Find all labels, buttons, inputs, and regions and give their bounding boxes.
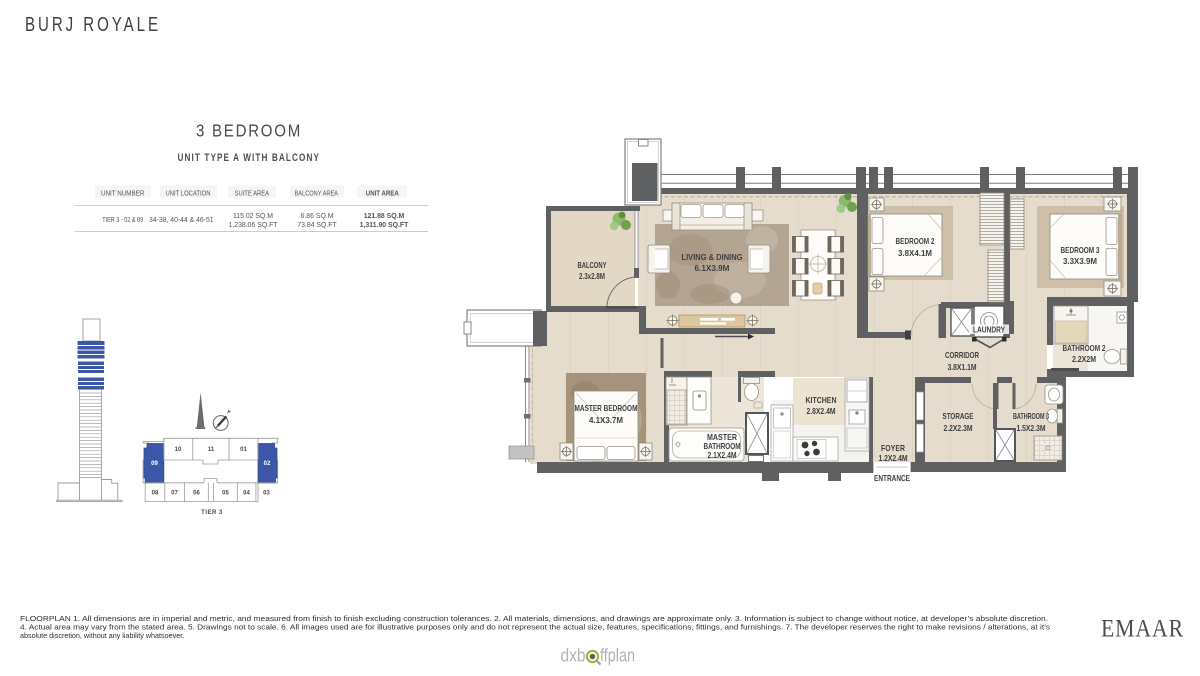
svg-text:04: 04 — [243, 491, 250, 497]
svg-text:2.2X2.3M: 2.2X2.3M — [944, 423, 973, 433]
svg-text:115.02 SQ.M: 115.02 SQ.M — [233, 213, 273, 220]
svg-text:11: 11 — [208, 447, 215, 453]
svg-text:BALCONY: BALCONY — [578, 260, 607, 270]
svg-text:UNIT AREA: UNIT AREA — [366, 189, 399, 198]
svg-text:dxb: dxb — [561, 645, 586, 666]
svg-text:CORRIDOR: CORRIDOR — [945, 350, 979, 360]
svg-text:...: ... — [637, 656, 643, 663]
svg-text:LAUNDRY: LAUNDRY — [973, 325, 1005, 335]
svg-text:1.5X2.3M: 1.5X2.3M — [1017, 423, 1046, 433]
svg-text:BEDROOM 3: BEDROOM 3 — [1061, 245, 1100, 255]
svg-text:2.8X2.4M: 2.8X2.4M — [807, 406, 836, 416]
svg-text:ENTRANCE: ENTRANCE — [874, 473, 910, 483]
svg-text:03: 03 — [263, 491, 270, 497]
svg-text:BALCONY AREA: BALCONY AREA — [295, 189, 339, 198]
svg-text:BEDROOM 2: BEDROOM 2 — [896, 236, 935, 246]
svg-text:3 BEDROOM: 3 BEDROOM — [196, 121, 302, 141]
svg-text:07: 07 — [171, 491, 178, 497]
svg-text:UNIT TYPE A WITH BALCONY: UNIT TYPE A WITH BALCONY — [178, 152, 321, 164]
svg-text:6.1X3.9M: 6.1X3.9M — [695, 263, 730, 273]
svg-text:FOYER: FOYER — [881, 443, 905, 453]
svg-text:01: 01 — [240, 447, 247, 453]
svg-text:TIER 3: TIER 3 — [201, 510, 223, 516]
svg-text:34-38, 40-44 & 46-51: 34-38, 40-44 & 46-51 — [149, 217, 214, 224]
svg-text:2.2X2M: 2.2X2M — [1072, 354, 1096, 364]
svg-text:UNIT LOCATION: UNIT LOCATION — [166, 189, 211, 198]
svg-text:ffplan: ffplan — [600, 645, 635, 666]
svg-text:121.88 SQ.M: 121.88 SQ.M — [364, 213, 405, 220]
svg-text:LIVING & DINING: LIVING & DINING — [682, 252, 743, 262]
svg-text:SUITE AREA: SUITE AREA — [235, 189, 270, 198]
svg-text:06: 06 — [193, 491, 200, 497]
svg-text:BATHROOM 2: BATHROOM 2 — [1063, 343, 1106, 353]
svg-text:1,311.90 SQ.FT: 1,311.90 SQ.FT — [360, 222, 409, 229]
svg-text:MASTER BEDROOM: MASTER BEDROOM — [575, 403, 638, 413]
svg-text:TIER 3 - 02 & 09: TIER 3 - 02 & 09 — [102, 217, 143, 224]
svg-text:STORAGE: STORAGE — [943, 411, 974, 421]
svg-text:3.8X4.1M: 3.8X4.1M — [898, 248, 932, 258]
svg-text:UNIT NUMBER: UNIT NUMBER — [101, 189, 145, 198]
svg-text:BATHROOM 3: BATHROOM 3 — [1013, 411, 1049, 421]
svg-text:4.1X3.7M: 4.1X3.7M — [589, 415, 623, 425]
svg-text:BURJ ROYALE: BURJ ROYALE — [25, 13, 161, 36]
svg-text:KITCHEN: KITCHEN — [806, 395, 837, 405]
svg-text:73.84 SQ.FT: 73.84 SQ.FT — [297, 222, 337, 229]
svg-text:EMAAR: EMAAR — [1101, 616, 1184, 643]
svg-text:1,238.06 SQ.FT: 1,238.06 SQ.FT — [228, 222, 278, 229]
svg-text:absolute discretion, without a: absolute discretion, without any liabili… — [20, 631, 184, 640]
svg-text:3.3X3.9M: 3.3X3.9M — [1063, 256, 1097, 266]
svg-text:2.3x2.8M: 2.3x2.8M — [579, 271, 605, 281]
svg-text:02: 02 — [264, 461, 271, 467]
svg-text:6.86 SQ.M: 6.86 SQ.M — [301, 213, 334, 220]
svg-text:2.1X2.4M: 2.1X2.4M — [708, 450, 737, 460]
svg-text:1.2X2.4M: 1.2X2.4M — [879, 453, 908, 463]
svg-text:3.8X1.1M: 3.8X1.1M — [948, 362, 977, 372]
svg-text:10: 10 — [175, 447, 182, 453]
svg-text:05: 05 — [222, 491, 229, 497]
svg-text:09: 09 — [151, 461, 158, 467]
svg-text:08: 08 — [152, 491, 159, 497]
